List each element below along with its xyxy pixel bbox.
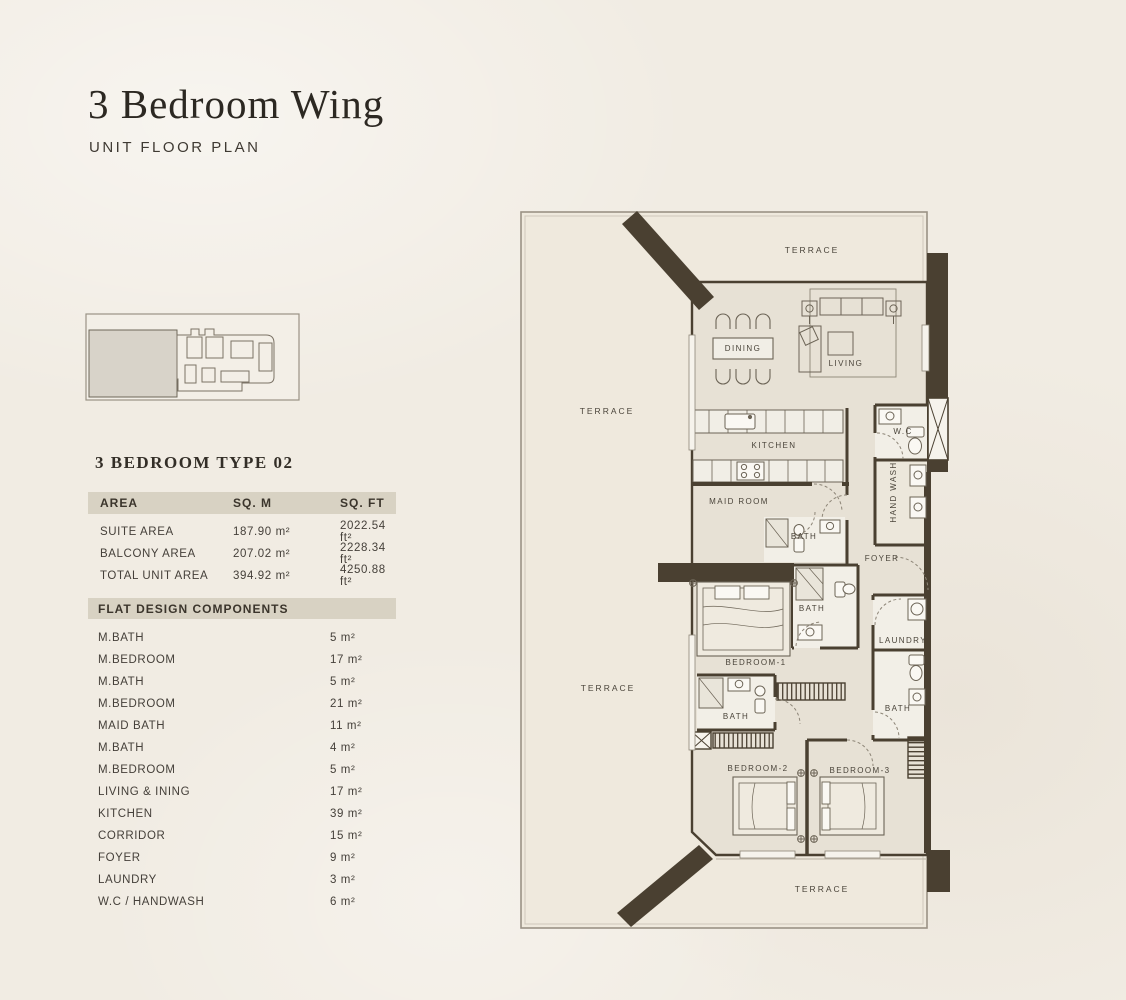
table-row: SUITE AREA 187.90 m² 2022.54 ft²	[88, 520, 396, 542]
plan-label-bedroom-1: BEDROOM-1	[725, 658, 786, 667]
component-row: M.BATH5 m²	[88, 671, 396, 693]
plan-label-terrace-left-upper: TERRACE	[580, 406, 635, 416]
plan-label-foyer: FOYER	[865, 554, 900, 563]
component-label: W.C / HANDWASH	[88, 896, 330, 908]
component-value: 21 m²	[330, 698, 396, 710]
component-row: CORRIDOR15 m²	[88, 825, 396, 847]
component-value: 39 m²	[330, 808, 396, 820]
plan-label-laundry: LAUNDRY	[879, 636, 927, 645]
row-label: SUITE AREA	[88, 526, 233, 538]
handwash-sink	[910, 497, 926, 518]
plan-label-dining: DINING	[725, 344, 761, 353]
component-label: M.BEDROOM	[88, 698, 330, 710]
row-sqm: 394.92 m²	[233, 570, 340, 582]
row-sqft: 4250.88 ft²	[340, 564, 396, 588]
key-plan-thumbnail	[85, 313, 300, 401]
wc-sink	[879, 409, 901, 424]
plan-label-terrace-left-lower: TERRACE	[581, 683, 636, 693]
area-table-header: AREA SQ. M SQ. FT	[88, 492, 396, 514]
component-row: M.BEDROOM17 m²	[88, 649, 396, 671]
plan-label-living: LIVING	[829, 359, 864, 368]
component-value: 17 m²	[330, 786, 396, 798]
handwash-sink	[910, 465, 926, 486]
page-subtitle: UNIT FLOOR PLAN	[89, 139, 260, 156]
col-header-sqm: SQ. M	[233, 496, 340, 510]
component-value: 17 m²	[330, 654, 396, 666]
component-label: MAID BATH	[88, 720, 330, 732]
plan-label-bath-1: BATH	[799, 604, 825, 613]
bath1-sink	[798, 625, 822, 640]
component-row: MAID BATH11 m²	[88, 715, 396, 737]
plan-label-terrace-top: TERRACE	[785, 245, 840, 255]
bed-bedroom-2	[733, 777, 797, 835]
col-header-sqft: SQ. FT	[340, 496, 396, 510]
component-row: FOYER9 m²	[88, 847, 396, 869]
component-label: KITCHEN	[88, 808, 330, 820]
floor-plan-drawing: TERRACE TERRACE TERRACE TERRACE DINING L…	[515, 205, 950, 935]
plan-label-terrace-bottom: TERRACE	[795, 884, 850, 894]
component-row: M.BATH4 m²	[88, 737, 396, 759]
component-label: FOYER	[88, 852, 330, 864]
key-plan-highlight-block	[89, 330, 177, 397]
component-value: 5 m²	[330, 764, 396, 776]
table-row: TOTAL UNIT AREA 394.92 m² 4250.88 ft²	[88, 564, 396, 586]
row-sqft: 2228.34 ft²	[340, 542, 396, 566]
component-value: 5 m²	[330, 632, 396, 644]
component-row: M.BEDROOM21 m²	[88, 693, 396, 715]
area-table: AREA SQ. M SQ. FT SUITE AREA 187.90 m² 2…	[88, 492, 396, 586]
component-label: LAUNDRY	[88, 874, 330, 886]
bed-bedroom-3	[820, 777, 884, 835]
kitchen-counter-lower	[693, 460, 843, 482]
component-row: M.BEDROOM5 m²	[88, 759, 396, 781]
component-value: 11 m²	[330, 720, 396, 732]
component-label: M.BATH	[88, 742, 330, 754]
bath2-toilet	[755, 699, 765, 713]
component-label: M.BEDROOM	[88, 654, 330, 666]
row-sqm: 187.90 m²	[233, 526, 340, 538]
components-heading: FLAT DESIGN COMPONENTS	[88, 598, 396, 619]
row-label: BALCONY AREA	[88, 548, 233, 560]
components-section: FLAT DESIGN COMPONENTS M.BATH5 m² M.BEDR…	[88, 598, 396, 913]
table-row: BALCONY AREA 207.02 m² 2228.34 ft²	[88, 542, 396, 564]
bed-bedroom-1	[690, 580, 798, 656]
page-title: 3 Bedroom Wing	[88, 80, 384, 128]
bath3-toilet	[909, 655, 924, 665]
component-row: M.BATH5 m²	[88, 627, 396, 649]
plan-label-bath-3: BATH	[885, 704, 911, 713]
component-value: 4 m²	[330, 742, 396, 754]
plan-label-wc: W.C	[893, 427, 912, 436]
component-value: 5 m²	[330, 676, 396, 688]
row-sqft: 2022.54 ft²	[340, 520, 396, 544]
kitchen-counter-upper	[690, 410, 843, 433]
plan-label-hand-wash: HAND WASH	[889, 461, 898, 522]
row-sqm: 207.02 m²	[233, 548, 340, 560]
plan-label-maid-bath: BATH	[791, 532, 817, 541]
component-row: W.C / HANDWASH6 m²	[88, 891, 396, 913]
unit-type-heading: 3 BEDROOM TYPE 02	[95, 453, 294, 473]
elevator-shaft	[928, 398, 948, 460]
component-value: 6 m²	[330, 896, 396, 908]
component-label: M.BATH	[88, 676, 330, 688]
component-row: LAUNDRY3 m²	[88, 869, 396, 891]
component-row: KITCHEN39 m²	[88, 803, 396, 825]
floor-plan-sheet: { "header": { "title": "3 Bedroom Wing",…	[0, 0, 1126, 1000]
component-row: LIVING & INING17 m²	[88, 781, 396, 803]
plan-label-bath-2: BATH	[723, 712, 749, 721]
component-label: M.BEDROOM	[88, 764, 330, 776]
row-label: TOTAL UNIT AREA	[88, 570, 233, 582]
plan-label-maid-room: MAID ROOM	[709, 497, 769, 506]
component-value: 15 m²	[330, 830, 396, 842]
col-header-area: AREA	[88, 496, 233, 510]
bath3-sink	[909, 689, 925, 705]
plan-label-bedroom-3: BEDROOM-3	[829, 766, 890, 775]
component-value: 9 m²	[330, 852, 396, 864]
component-label: CORRIDOR	[88, 830, 330, 842]
component-value: 3 m²	[330, 874, 396, 886]
plan-label-kitchen: KITCHEN	[752, 441, 797, 450]
plan-label-bedroom-2: BEDROOM-2	[727, 764, 788, 773]
component-label: LIVING & INING	[88, 786, 330, 798]
component-label: M.BATH	[88, 632, 330, 644]
